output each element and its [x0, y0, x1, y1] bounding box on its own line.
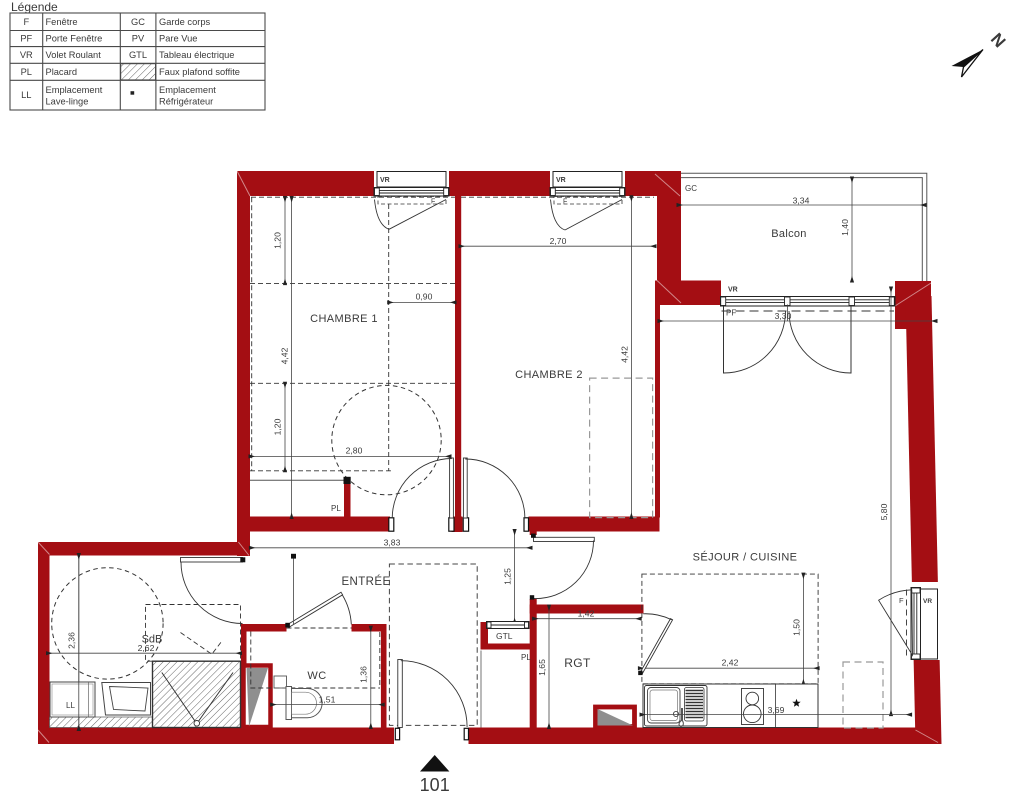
svg-text:2,80: 2,80: [346, 446, 363, 456]
svg-text:Fenêtre: Fenêtre: [46, 17, 78, 27]
svg-text:3,34: 3,34: [793, 196, 810, 206]
svg-text:F: F: [23, 17, 29, 27]
svg-text:1,20: 1,20: [273, 232, 283, 249]
svg-text:4,42: 4,42: [620, 346, 630, 363]
svg-text:1,25: 1,25: [503, 568, 513, 585]
svg-text:PV: PV: [132, 34, 145, 44]
svg-text:VR: VR: [556, 177, 566, 184]
svg-text:WC: WC: [307, 670, 326, 682]
svg-text:F: F: [431, 199, 435, 206]
svg-text:CHAMBRE 2: CHAMBRE 2: [515, 369, 583, 381]
svg-text:SÉJOUR / CUISINE: SÉJOUR / CUISINE: [693, 551, 798, 564]
svg-text:VR: VR: [923, 598, 932, 605]
svg-text:0,90: 0,90: [416, 292, 433, 302]
svg-text:Emplacement: Emplacement: [159, 85, 216, 95]
svg-text:ENTRÉE: ENTRÉE: [341, 575, 390, 588]
svg-text:2,36: 2,36: [67, 632, 77, 649]
svg-text:1,42: 1,42: [578, 609, 595, 619]
svg-text:VR: VR: [728, 287, 738, 294]
svg-text:GC: GC: [131, 17, 145, 27]
svg-text:RGT: RGT: [564, 656, 591, 670]
svg-text:SdB: SdB: [142, 634, 163, 646]
svg-text:F: F: [899, 596, 904, 605]
svg-text:Faux plafond soffite: Faux plafond soffite: [159, 67, 240, 77]
svg-text:3,83: 3,83: [384, 538, 401, 548]
svg-text:1,65: 1,65: [537, 659, 547, 676]
svg-text:GC: GC: [685, 184, 697, 193]
svg-text:PF: PF: [726, 309, 736, 318]
svg-text:1,36: 1,36: [359, 666, 369, 683]
svg-text:LL: LL: [21, 90, 31, 100]
svg-text:1,51: 1,51: [319, 695, 336, 705]
svg-text:PF: PF: [20, 34, 32, 44]
svg-text:101: 101: [420, 775, 450, 795]
svg-text:VR: VR: [20, 50, 33, 60]
svg-text:GTL: GTL: [496, 631, 513, 641]
svg-text:2,70: 2,70: [550, 236, 567, 246]
svg-text:2,42: 2,42: [722, 658, 739, 668]
svg-text:F: F: [563, 199, 567, 206]
svg-text:CHAMBRE 1: CHAMBRE 1: [310, 313, 378, 325]
svg-text:1,20: 1,20: [273, 418, 283, 435]
svg-text:VR: VR: [380, 177, 390, 184]
svg-text:PL: PL: [521, 653, 531, 662]
svg-text:Volet Roulant: Volet Roulant: [46, 50, 102, 60]
svg-text:3,69: 3,69: [768, 705, 785, 715]
svg-text:PL: PL: [21, 67, 32, 77]
svg-text:Légende: Légende: [11, 0, 58, 14]
svg-text:4,42: 4,42: [280, 347, 290, 364]
svg-text:Porte Fenêtre: Porte Fenêtre: [46, 34, 103, 44]
svg-text:LL: LL: [66, 701, 75, 710]
svg-text:Pare Vue: Pare Vue: [159, 34, 197, 44]
svg-text:Réfrigérateur: Réfrigérateur: [159, 97, 213, 107]
svg-text:5,80: 5,80: [879, 503, 889, 520]
svg-text:Lave-linge: Lave-linge: [46, 97, 89, 107]
svg-text:Placard: Placard: [46, 67, 78, 77]
svg-text:Tableau électrique: Tableau électrique: [159, 50, 234, 60]
svg-text:1,50: 1,50: [792, 619, 802, 636]
svg-text:Emplacement: Emplacement: [46, 85, 103, 95]
svg-text:1,40: 1,40: [840, 219, 850, 236]
svg-text:GTL: GTL: [129, 50, 147, 60]
svg-text:Garde corps: Garde corps: [159, 17, 211, 27]
svg-text:PL: PL: [331, 504, 341, 513]
svg-text:Balcon: Balcon: [771, 228, 806, 240]
svg-text:3,30: 3,30: [775, 311, 792, 321]
